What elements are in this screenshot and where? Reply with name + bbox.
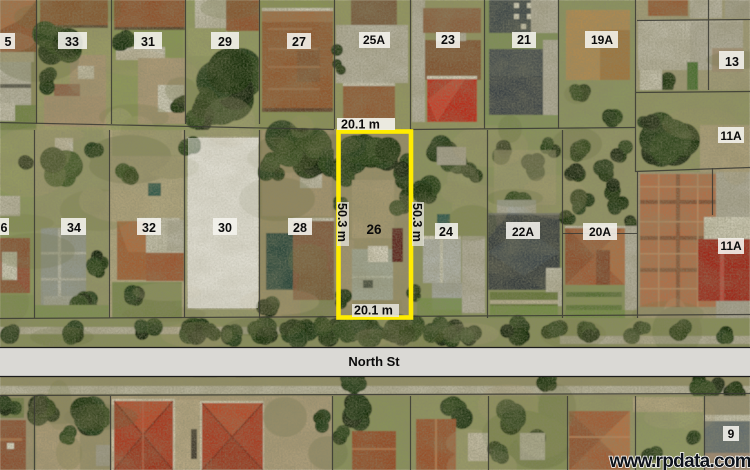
svg-text:29: 29 (218, 35, 232, 49)
svg-text:28: 28 (293, 221, 307, 235)
svg-text:50.3 m: 50.3 m (410, 203, 424, 242)
svg-text:27: 27 (292, 35, 306, 49)
svg-text:20.1 m: 20.1 m (354, 304, 393, 318)
svg-text:North St: North St (348, 354, 400, 369)
svg-text:23: 23 (441, 33, 455, 47)
svg-text:11A: 11A (720, 129, 742, 143)
svg-text:34: 34 (67, 221, 81, 235)
svg-text:31: 31 (141, 35, 155, 49)
svg-text:www.rpdata.com: www.rpdata.com (608, 451, 750, 470)
svg-text:33: 33 (65, 35, 79, 49)
svg-text:21: 21 (517, 33, 531, 47)
svg-text:22A: 22A (512, 225, 534, 239)
svg-text:19A: 19A (591, 33, 613, 47)
svg-text:50.3 m: 50.3 m (335, 203, 349, 242)
svg-text:30: 30 (218, 221, 232, 235)
svg-text:11A: 11A (720, 239, 742, 253)
svg-text:24: 24 (439, 225, 453, 239)
svg-text:20.1 m: 20.1 m (341, 118, 380, 132)
svg-text:32: 32 (142, 221, 156, 235)
svg-text:9: 9 (728, 427, 735, 441)
svg-text:26: 26 (366, 222, 382, 237)
svg-text:6: 6 (1, 221, 8, 235)
svg-text:5: 5 (5, 35, 12, 49)
svg-text:25A: 25A (363, 33, 385, 47)
svg-text:20A: 20A (589, 225, 611, 239)
svg-text:13: 13 (725, 55, 739, 69)
